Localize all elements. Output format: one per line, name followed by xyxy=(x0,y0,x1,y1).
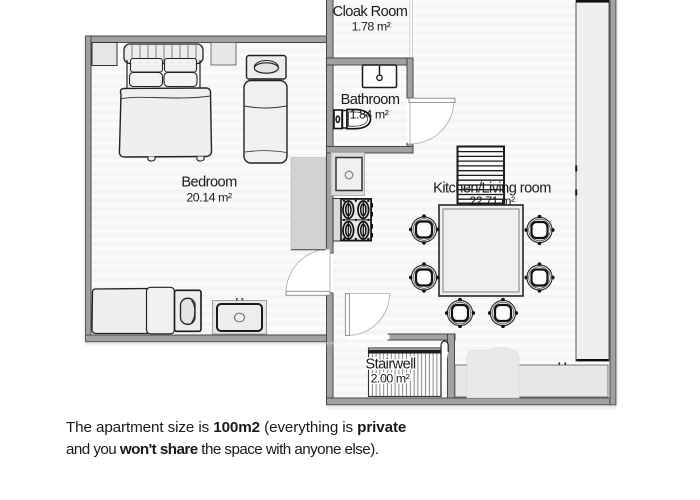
svg-text:Bathroom: Bathroom xyxy=(341,92,400,108)
svg-text:2.00 m²: 2.00 m² xyxy=(371,372,410,386)
svg-text:Cloak Room: Cloak Room xyxy=(333,4,408,20)
svg-text:1.78 m²: 1.78 m² xyxy=(352,19,391,33)
svg-text:20.14 m²: 20.14 m² xyxy=(186,191,232,205)
svg-text:1.84 m²: 1.84 m² xyxy=(350,108,389,122)
svg-text:22.71 m²: 22.71 m² xyxy=(469,194,515,208)
svg-text:Bedroom: Bedroom xyxy=(181,175,237,191)
svg-text:Stairwell: Stairwell xyxy=(365,357,416,373)
